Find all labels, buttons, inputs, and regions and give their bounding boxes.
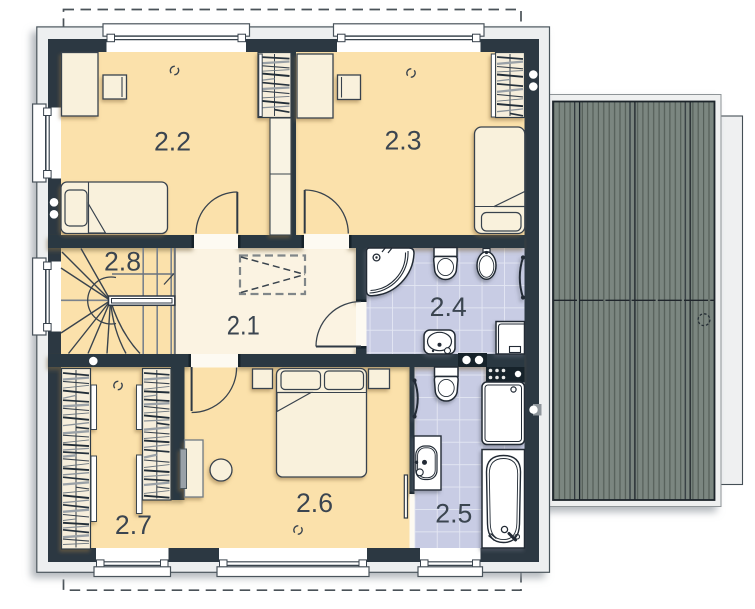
svg-text:2.4: 2.4 (430, 292, 467, 322)
svg-text:2.1: 2.1 (227, 310, 260, 340)
svg-text:2.2: 2.2 (154, 127, 191, 157)
svg-text:2.7: 2.7 (115, 510, 152, 540)
svg-text:2.3: 2.3 (385, 126, 422, 156)
svg-text:2.8: 2.8 (104, 247, 141, 277)
svg-text:2.5: 2.5 (435, 499, 472, 529)
svg-text:2.6: 2.6 (296, 488, 333, 518)
